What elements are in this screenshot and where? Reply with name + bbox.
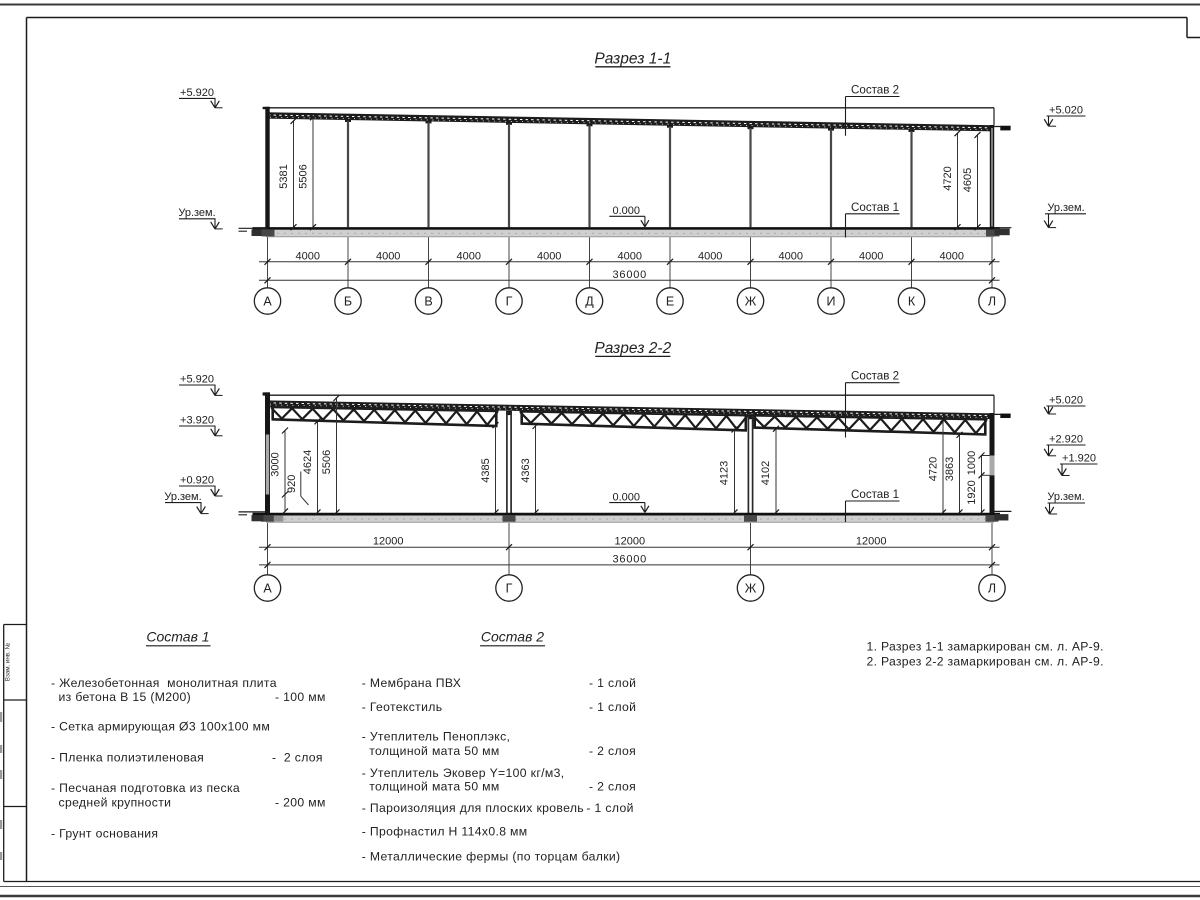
svg-text:Л: Л [988,582,996,596]
svg-text:4000: 4000 [537,250,561,262]
svg-text:4000: 4000 [457,250,481,262]
svg-text:+5.020: +5.020 [1049,395,1083,407]
svg-text:Ур.зем.: Ур.зем. [1047,491,1084,503]
svg-text:5506: 5506 [321,450,333,474]
svg-text:В: В [424,295,432,309]
svg-text:920: 920 [286,475,298,493]
svg-text:1. Разрез 1-1 замаркирован см.: 1. Разрез 1-1 замаркирован см. л. АР-9. [867,639,1104,653]
svg-text:А: А [263,295,272,309]
svg-text:- Пленка полиэтиленовая: - Пленка полиэтиленовая [51,751,204,765]
svg-text:- 2 слоя: - 2 слоя [589,780,636,794]
svg-text:36000: 36000 [613,553,648,565]
svg-text:4720: 4720 [942,166,954,190]
svg-text:Состав 1: Состав 1 [851,488,899,501]
svg-text:- Песчаная подготовка из песка: - Песчаная подготовка из песка [51,781,240,795]
svg-text:- 2 слоя: - 2 слоя [272,751,323,765]
svg-text:Ур.зем.: Ур.зем. [178,207,215,219]
svg-text:Ж: Ж [745,295,757,309]
svg-text:- Металлические фермы (по торц: - Металлические фермы (по торцам балки) [362,850,621,864]
svg-text:4000: 4000 [779,250,803,262]
svg-text:Состав 1: Состав 1 [851,201,899,214]
svg-text:средней крупности: средней крупности [59,795,172,809]
svg-text:толщиной мата 50 мм: толщиной мата 50 мм [369,780,499,794]
svg-text:4000: 4000 [618,250,642,262]
svg-text:4385: 4385 [480,458,492,482]
svg-text:- 1 слой: - 1 слой [589,700,636,714]
svg-text:4624: 4624 [302,450,314,474]
svg-text:И: И [827,295,836,309]
svg-text:4000: 4000 [376,250,400,262]
svg-text:Состав 1: Состав 1 [146,629,209,645]
svg-text:12000: 12000 [615,536,646,548]
svg-text:+3.920: +3.920 [180,415,214,427]
svg-text:- 200 мм: - 200 мм [275,795,326,809]
svg-text:Б: Б [344,295,352,309]
svg-text:4000: 4000 [296,250,320,262]
svg-text:- Мембрана ПВХ: - Мембрана ПВХ [362,676,462,690]
svg-text:12000: 12000 [856,536,887,548]
svg-text:+0.920: +0.920 [180,475,214,487]
svg-text:- 100 мм: - 100 мм [275,690,326,704]
svg-text:3863: 3863 [944,457,956,481]
svg-text:Д: Д [585,295,594,309]
svg-text:Взам. инв. №: Взам. инв. № [5,642,12,681]
svg-text:Состав 2: Состав 2 [851,370,899,383]
svg-text:толщиной мата 50 мм: толщиной мата 50 мм [369,744,499,758]
svg-text:0.000: 0.000 [613,205,641,217]
svg-text:4720: 4720 [928,457,940,481]
svg-text:- Геотекстиль: - Геотекстиль [362,700,443,714]
svg-text:- 2 слоя: - 2 слоя [589,744,636,758]
svg-text:А: А [263,582,272,596]
svg-text:- Грунт основания: - Грунт основания [51,826,158,840]
svg-text:3000: 3000 [270,452,282,476]
svg-text:5381: 5381 [278,164,290,188]
svg-text:- Утеплитель Пеноплэкс,: - Утеплитель Пеноплэкс, [362,729,511,743]
svg-text:- Железобетонная монолитная п: - Железобетонная монолитная плита [51,676,277,690]
svg-text:Л: Л [988,295,996,309]
svg-text:12000: 12000 [373,536,404,548]
svg-text:5506: 5506 [298,164,310,188]
svg-text:+2.920: +2.920 [1049,434,1083,446]
svg-text:4123: 4123 [719,461,731,485]
svg-text:Разрез 1-1: Разрез 1-1 [594,51,671,68]
svg-text:0.000: 0.000 [613,491,641,503]
svg-text:+5.920: +5.920 [180,374,214,386]
svg-text:из бетона В 15 (М200): из бетона В 15 (М200) [59,690,192,704]
svg-text:- 1 слой: - 1 слой [586,801,633,815]
svg-text:1920: 1920 [966,480,978,504]
svg-text:4102: 4102 [760,461,772,485]
svg-text:Ж: Ж [745,582,757,596]
svg-text:4363: 4363 [520,458,532,482]
svg-text:4605: 4605 [962,168,974,192]
svg-text:+5.020: +5.020 [1049,105,1083,117]
svg-text:Ур.зем.: Ур.зем. [1047,202,1084,214]
svg-text:1000: 1000 [966,451,978,475]
svg-text:36000: 36000 [613,269,648,281]
svg-text:- Утеплитель Эковер Y=100 кг/м: - Утеплитель Эковер Y=100 кг/м3, [362,766,565,780]
svg-text:Состав 2: Состав 2 [851,84,899,97]
svg-text:- Профнастил Н 114х0.8 мм: - Профнастил Н 114х0.8 мм [362,825,528,839]
svg-text:Состав 2: Состав 2 [481,629,544,645]
svg-text:Г: Г [506,295,513,309]
svg-text:Е: Е [666,295,674,309]
svg-text:Г: Г [506,582,513,596]
svg-text:Разрез 2-2: Разрез 2-2 [594,340,671,357]
svg-text:Ур.зем.: Ур.зем. [164,491,201,503]
svg-text:+1.920: +1.920 [1062,453,1096,465]
svg-text:4000: 4000 [698,250,722,262]
svg-text:- Пароизоляция для плоских кро: - Пароизоляция для плоских кровель [362,801,584,815]
svg-text:+5.920: +5.920 [180,87,214,99]
svg-text:- 1 слой: - 1 слой [589,676,636,690]
svg-text:- Сетка армирующая Ø3 100х100: - Сетка армирующая Ø3 100х100 мм [51,720,270,734]
svg-text:2. Разрез 2-2 замаркирован см.: 2. Разрез 2-2 замаркирован см. л. АР-9. [867,654,1104,668]
svg-text:4000: 4000 [859,250,883,262]
svg-text:4000: 4000 [940,250,964,262]
svg-text:К: К [908,295,916,309]
